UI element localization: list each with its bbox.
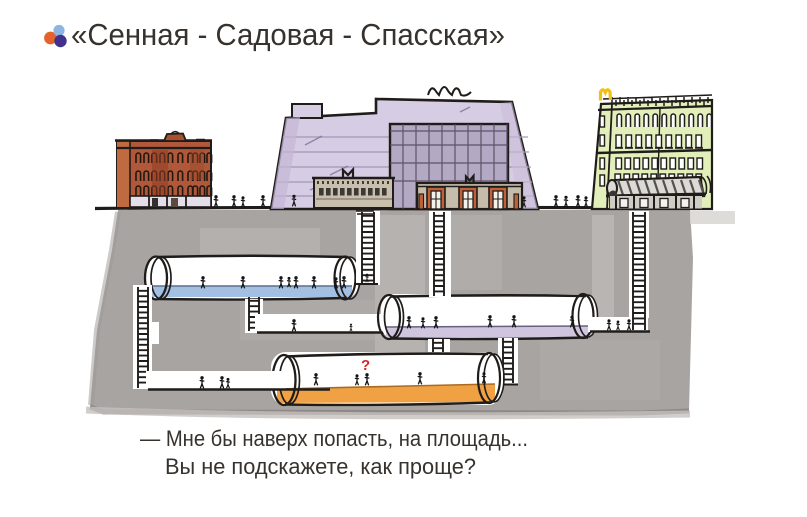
svg-text:Вы не подскажете, как проще?: Вы не подскажете, как проще? xyxy=(165,454,476,479)
svg-text:«Сенная - Садовая - Спасская»: «Сенная - Садовая - Спасская» xyxy=(71,17,505,52)
svg-text:?: ? xyxy=(361,357,370,374)
svg-text:— Мне бы наверх попасть, на пл: — Мне бы наверх попасть, на площадь... xyxy=(140,426,528,451)
